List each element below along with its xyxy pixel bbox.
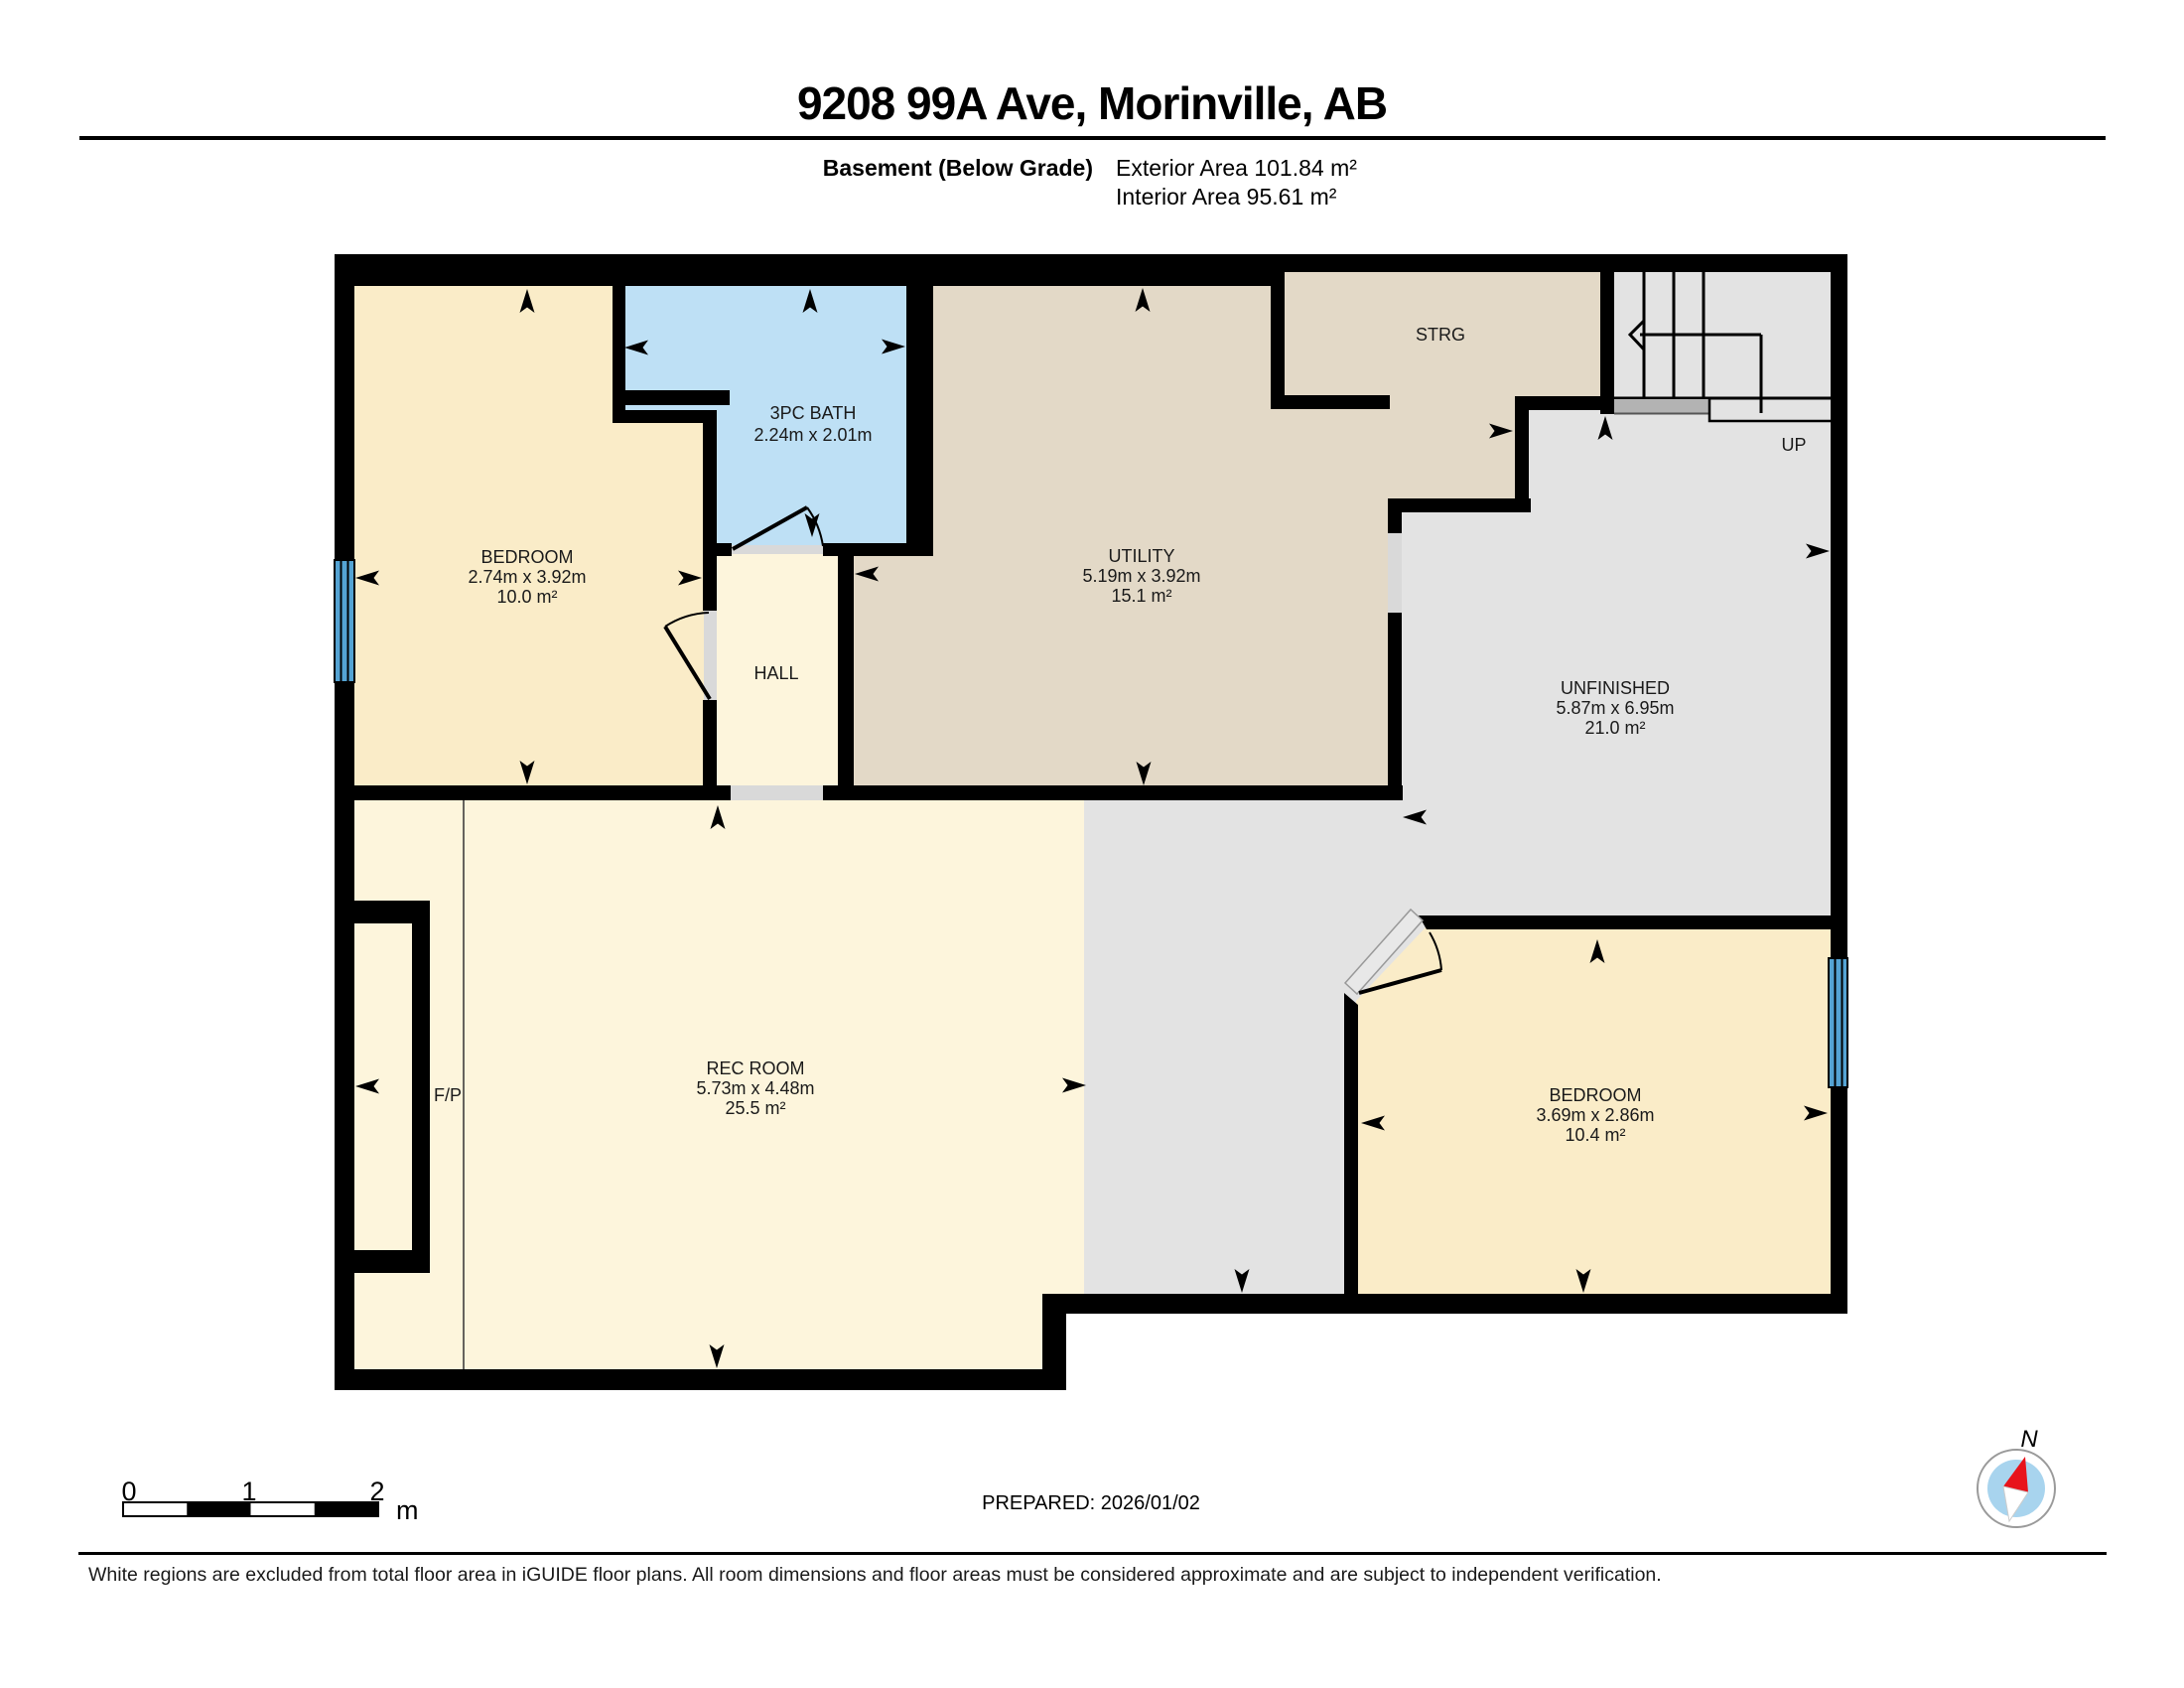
svg-text:2.24m x 2.01m: 2.24m x 2.01m	[753, 425, 872, 445]
svg-text:m: m	[396, 1495, 419, 1525]
svg-text:UTILITY: UTILITY	[1108, 546, 1174, 566]
svg-text:1: 1	[241, 1477, 256, 1506]
svg-text:3PC BATH: 3PC BATH	[770, 403, 857, 423]
svg-text:HALL: HALL	[753, 663, 798, 683]
svg-text:0: 0	[121, 1477, 136, 1506]
svg-text:5.73m x 4.48m: 5.73m x 4.48m	[696, 1078, 814, 1098]
svg-text:5.87m x 6.95m: 5.87m x 6.95m	[1556, 698, 1674, 718]
svg-text:15.1 m²: 15.1 m²	[1111, 586, 1171, 606]
svg-text:2.74m x 3.92m: 2.74m x 3.92m	[468, 567, 586, 587]
svg-text:10.4 m²: 10.4 m²	[1565, 1125, 1625, 1145]
svg-text:STRG: STRG	[1416, 325, 1465, 345]
svg-text:21.0 m²: 21.0 m²	[1584, 718, 1645, 738]
svg-text:Exterior Area 101.84 m²: Exterior Area 101.84 m²	[1116, 155, 1357, 181]
svg-text:UNFINISHED: UNFINISHED	[1561, 678, 1670, 698]
svg-text:PREPARED: 2026/01/02: PREPARED: 2026/01/02	[982, 1492, 1200, 1514]
svg-text:25.5 m²: 25.5 m²	[725, 1098, 785, 1118]
svg-text:2: 2	[369, 1477, 384, 1506]
svg-text:BEDROOM: BEDROOM	[480, 547, 573, 567]
svg-text:5.19m x 3.92m: 5.19m x 3.92m	[1082, 566, 1200, 586]
svg-text:Basement (Below Grade): Basement (Below Grade)	[823, 155, 1093, 181]
svg-text:9208 99A Ave, Morinville, AB: 9208 99A Ave, Morinville, AB	[797, 77, 1387, 129]
svg-text:3.69m x 2.86m: 3.69m x 2.86m	[1536, 1105, 1654, 1125]
svg-text:White regions are excluded fro: White regions are excluded from total fl…	[88, 1564, 1662, 1586]
svg-text:F/P: F/P	[434, 1085, 462, 1105]
svg-text:UP: UP	[1781, 435, 1806, 455]
svg-text:N: N	[2020, 1426, 2038, 1453]
svg-text:Interior Area 95.61 m²: Interior Area 95.61 m²	[1116, 184, 1337, 210]
svg-text:10.0 m²: 10.0 m²	[496, 587, 557, 607]
svg-text:REC ROOM: REC ROOM	[707, 1058, 805, 1078]
svg-text:BEDROOM: BEDROOM	[1549, 1085, 1641, 1105]
